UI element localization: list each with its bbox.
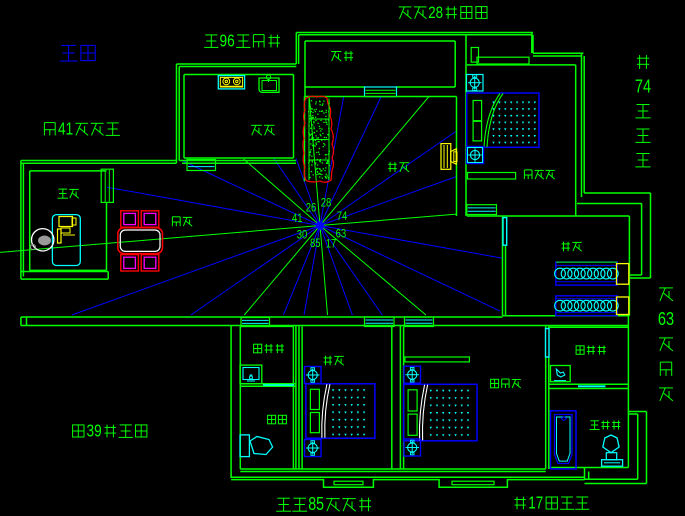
svg-text:41: 41 [292,213,303,225]
svg-text:17: 17 [528,492,543,512]
svg-text:63: 63 [658,308,674,329]
svg-text:28: 28 [321,198,332,210]
svg-text:85: 85 [310,238,321,250]
svg-text:30: 30 [297,230,308,242]
svg-text:28: 28 [428,3,443,22]
svg-text:74: 74 [635,75,651,96]
svg-text:85: 85 [308,494,324,514]
svg-text:63: 63 [336,229,347,241]
svg-text:74: 74 [337,211,348,223]
svg-text:39: 39 [87,421,102,441]
svg-text:17: 17 [326,239,337,251]
svg-text:96: 96 [220,31,235,51]
svg-text:26: 26 [306,203,317,215]
svg-text:41: 41 [58,119,73,139]
